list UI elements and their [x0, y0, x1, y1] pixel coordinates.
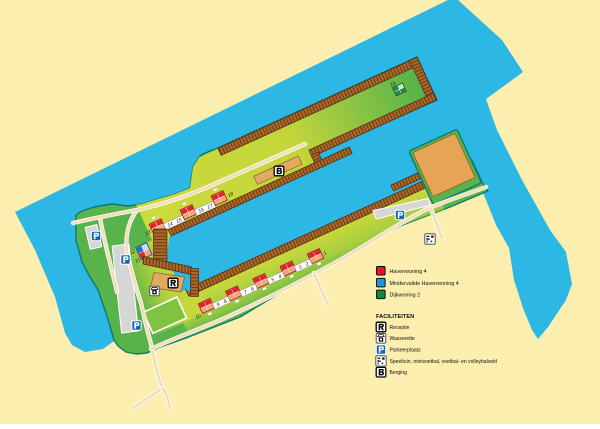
svg-text:Wasserette: Wasserette: [390, 336, 416, 342]
svg-text:Parkeerplaats: Parkeerplaats: [390, 348, 422, 354]
svg-text:Dijkwoning 2: Dijkwoning 2: [390, 293, 421, 299]
svg-text:Berging: Berging: [390, 370, 408, 376]
svg-text:Receptie: Receptie: [390, 325, 410, 331]
svg-text:Mindervalide Havenwoning 4: Mindervalide Havenwoning 4: [390, 281, 459, 287]
svg-text:FACILITEITEN: FACILITEITEN: [376, 314, 414, 320]
svg-text:Speeltuin, minivoetbal, voetba: Speeltuin, minivoetbal, voetbal- en voll…: [390, 359, 498, 365]
svg-text:Havenwoning 4: Havenwoning 4: [390, 269, 427, 275]
